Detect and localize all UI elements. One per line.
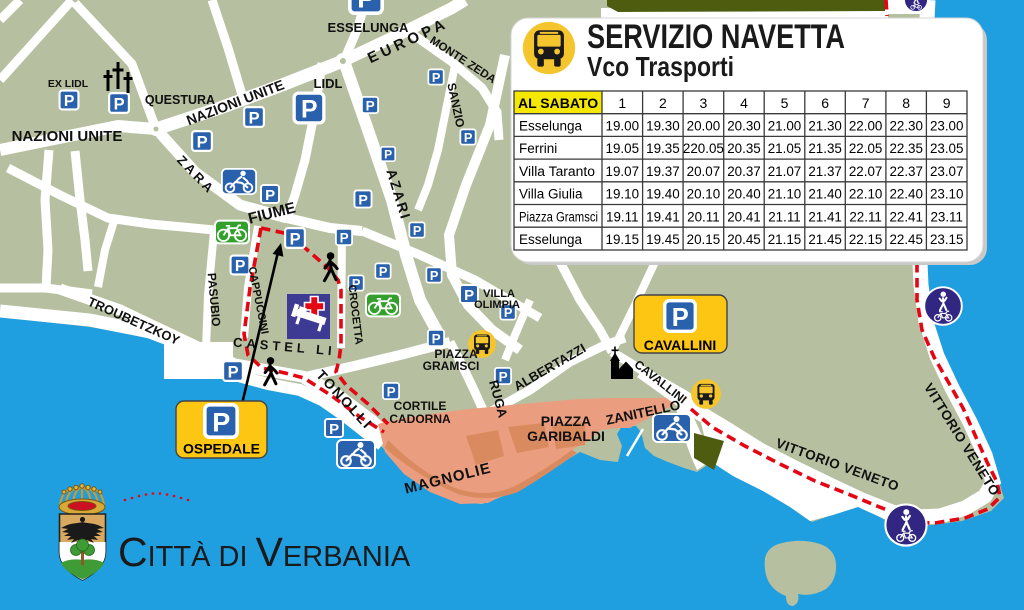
svg-text:21.15: 21.15 bbox=[768, 232, 802, 247]
svg-text:OLIMPIA: OLIMPIA bbox=[474, 299, 520, 311]
svg-text:21.07: 21.07 bbox=[768, 164, 802, 179]
svg-text:19.40: 19.40 bbox=[646, 187, 680, 202]
svg-text:22.41: 22.41 bbox=[889, 209, 923, 224]
svg-text:22.40: 22.40 bbox=[889, 187, 923, 202]
svg-text:22.00: 22.00 bbox=[849, 119, 883, 134]
svg-text:22.11: 22.11 bbox=[849, 209, 882, 224]
svg-text:23.05: 23.05 bbox=[930, 141, 964, 156]
svg-text:20.15: 20.15 bbox=[687, 232, 721, 247]
svg-text:1: 1 bbox=[618, 95, 626, 111]
svg-text:9: 9 bbox=[943, 95, 951, 111]
svg-text:CAVALLINI: CAVALLINI bbox=[644, 337, 717, 353]
svg-text:20.30: 20.30 bbox=[727, 119, 761, 134]
svg-text:19.37: 19.37 bbox=[646, 164, 680, 179]
svg-text:6: 6 bbox=[821, 95, 829, 111]
svg-text:21.40: 21.40 bbox=[808, 187, 842, 202]
svg-text:2: 2 bbox=[659, 95, 667, 111]
svg-text:20.40: 20.40 bbox=[727, 187, 761, 202]
svg-text:Villa Taranto: Villa Taranto bbox=[519, 164, 595, 179]
svg-text:19.30: 19.30 bbox=[646, 119, 680, 134]
svg-text:21.10: 21.10 bbox=[768, 187, 802, 202]
svg-text:20.45: 20.45 bbox=[727, 232, 761, 247]
svg-text:20.41: 20.41 bbox=[727, 209, 761, 224]
svg-text:GRAMSCI: GRAMSCI bbox=[423, 359, 480, 373]
svg-text:20.11: 20.11 bbox=[687, 209, 720, 224]
svg-text:Esselunga: Esselunga bbox=[519, 119, 583, 134]
svg-text:3: 3 bbox=[700, 95, 708, 111]
svg-text:20.00: 20.00 bbox=[687, 119, 721, 134]
svg-text:NAZIONI UNITE: NAZIONI UNITE bbox=[12, 128, 123, 145]
svg-text:Vco Trasporti: Vco Trasporti bbox=[587, 51, 734, 82]
svg-text:Esselunga: Esselunga bbox=[519, 232, 583, 247]
svg-text:CORTILE: CORTILE bbox=[394, 399, 447, 413]
svg-text:19.05: 19.05 bbox=[606, 141, 640, 156]
svg-text:5: 5 bbox=[781, 95, 789, 111]
svg-text:EX LIDL: EX LIDL bbox=[48, 78, 89, 90]
svg-text:23.10: 23.10 bbox=[930, 187, 964, 202]
svg-text:21.45: 21.45 bbox=[808, 232, 842, 247]
svg-text:22.05: 22.05 bbox=[849, 141, 883, 156]
svg-text:20.37: 20.37 bbox=[727, 164, 761, 179]
svg-text:21.30: 21.30 bbox=[808, 119, 842, 134]
svg-text:21.35: 21.35 bbox=[808, 141, 842, 156]
svg-text:OSPEDALE: OSPEDALE bbox=[183, 441, 260, 457]
svg-text:LIDL: LIDL bbox=[314, 76, 343, 91]
svg-text:22.35: 22.35 bbox=[889, 141, 923, 156]
svg-text:23.15: 23.15 bbox=[930, 232, 964, 247]
svg-text:19.15: 19.15 bbox=[606, 232, 640, 247]
svg-text:220.05: 220.05 bbox=[683, 141, 724, 156]
svg-text:4: 4 bbox=[740, 95, 748, 111]
svg-text:21.00: 21.00 bbox=[768, 119, 802, 134]
svg-text:GARIBALDI: GARIBALDI bbox=[527, 428, 605, 444]
svg-text:19.45: 19.45 bbox=[646, 232, 680, 247]
svg-text:Ferrini: Ferrini bbox=[519, 141, 557, 156]
svg-text:22.30: 22.30 bbox=[889, 119, 923, 134]
svg-text:22.37: 22.37 bbox=[889, 164, 923, 179]
svg-text:22.45: 22.45 bbox=[889, 232, 923, 247]
svg-text:19.07: 19.07 bbox=[606, 164, 640, 179]
svg-text:Villa Giulia: Villa Giulia bbox=[519, 187, 583, 202]
svg-text:CADORNA: CADORNA bbox=[389, 412, 451, 426]
svg-text:20.35: 20.35 bbox=[727, 141, 761, 156]
svg-text:AL SABATO: AL SABATO bbox=[518, 95, 598, 111]
svg-text:19.11: 19.11 bbox=[606, 209, 639, 224]
svg-text:7: 7 bbox=[862, 95, 870, 111]
svg-text:PIAZZA: PIAZZA bbox=[541, 413, 592, 429]
svg-text:23.07: 23.07 bbox=[930, 164, 964, 179]
svg-text:21.37: 21.37 bbox=[808, 164, 842, 179]
svg-text:22.15: 22.15 bbox=[849, 232, 883, 247]
svg-text:21.11: 21.11 bbox=[768, 209, 801, 224]
svg-text:Piazza Gramsci: Piazza Gramsci bbox=[519, 209, 598, 224]
svg-text:ESSELUNGA: ESSELUNGA bbox=[328, 20, 410, 35]
svg-text:22.10: 22.10 bbox=[849, 187, 883, 202]
svg-text:20.07: 20.07 bbox=[687, 164, 721, 179]
svg-text:19.35: 19.35 bbox=[646, 141, 680, 156]
svg-text:21.05: 21.05 bbox=[768, 141, 802, 156]
svg-text:23.00: 23.00 bbox=[930, 119, 964, 134]
svg-text:20.10: 20.10 bbox=[687, 187, 721, 202]
svg-text:21.41: 21.41 bbox=[808, 209, 842, 224]
svg-text:19.41: 19.41 bbox=[646, 209, 680, 224]
svg-text:22.07: 22.07 bbox=[849, 164, 883, 179]
svg-text:23.11: 23.11 bbox=[930, 209, 963, 224]
svg-text:19.10: 19.10 bbox=[606, 187, 640, 202]
svg-text:19.00: 19.00 bbox=[606, 119, 640, 134]
svg-text:8: 8 bbox=[902, 95, 910, 111]
